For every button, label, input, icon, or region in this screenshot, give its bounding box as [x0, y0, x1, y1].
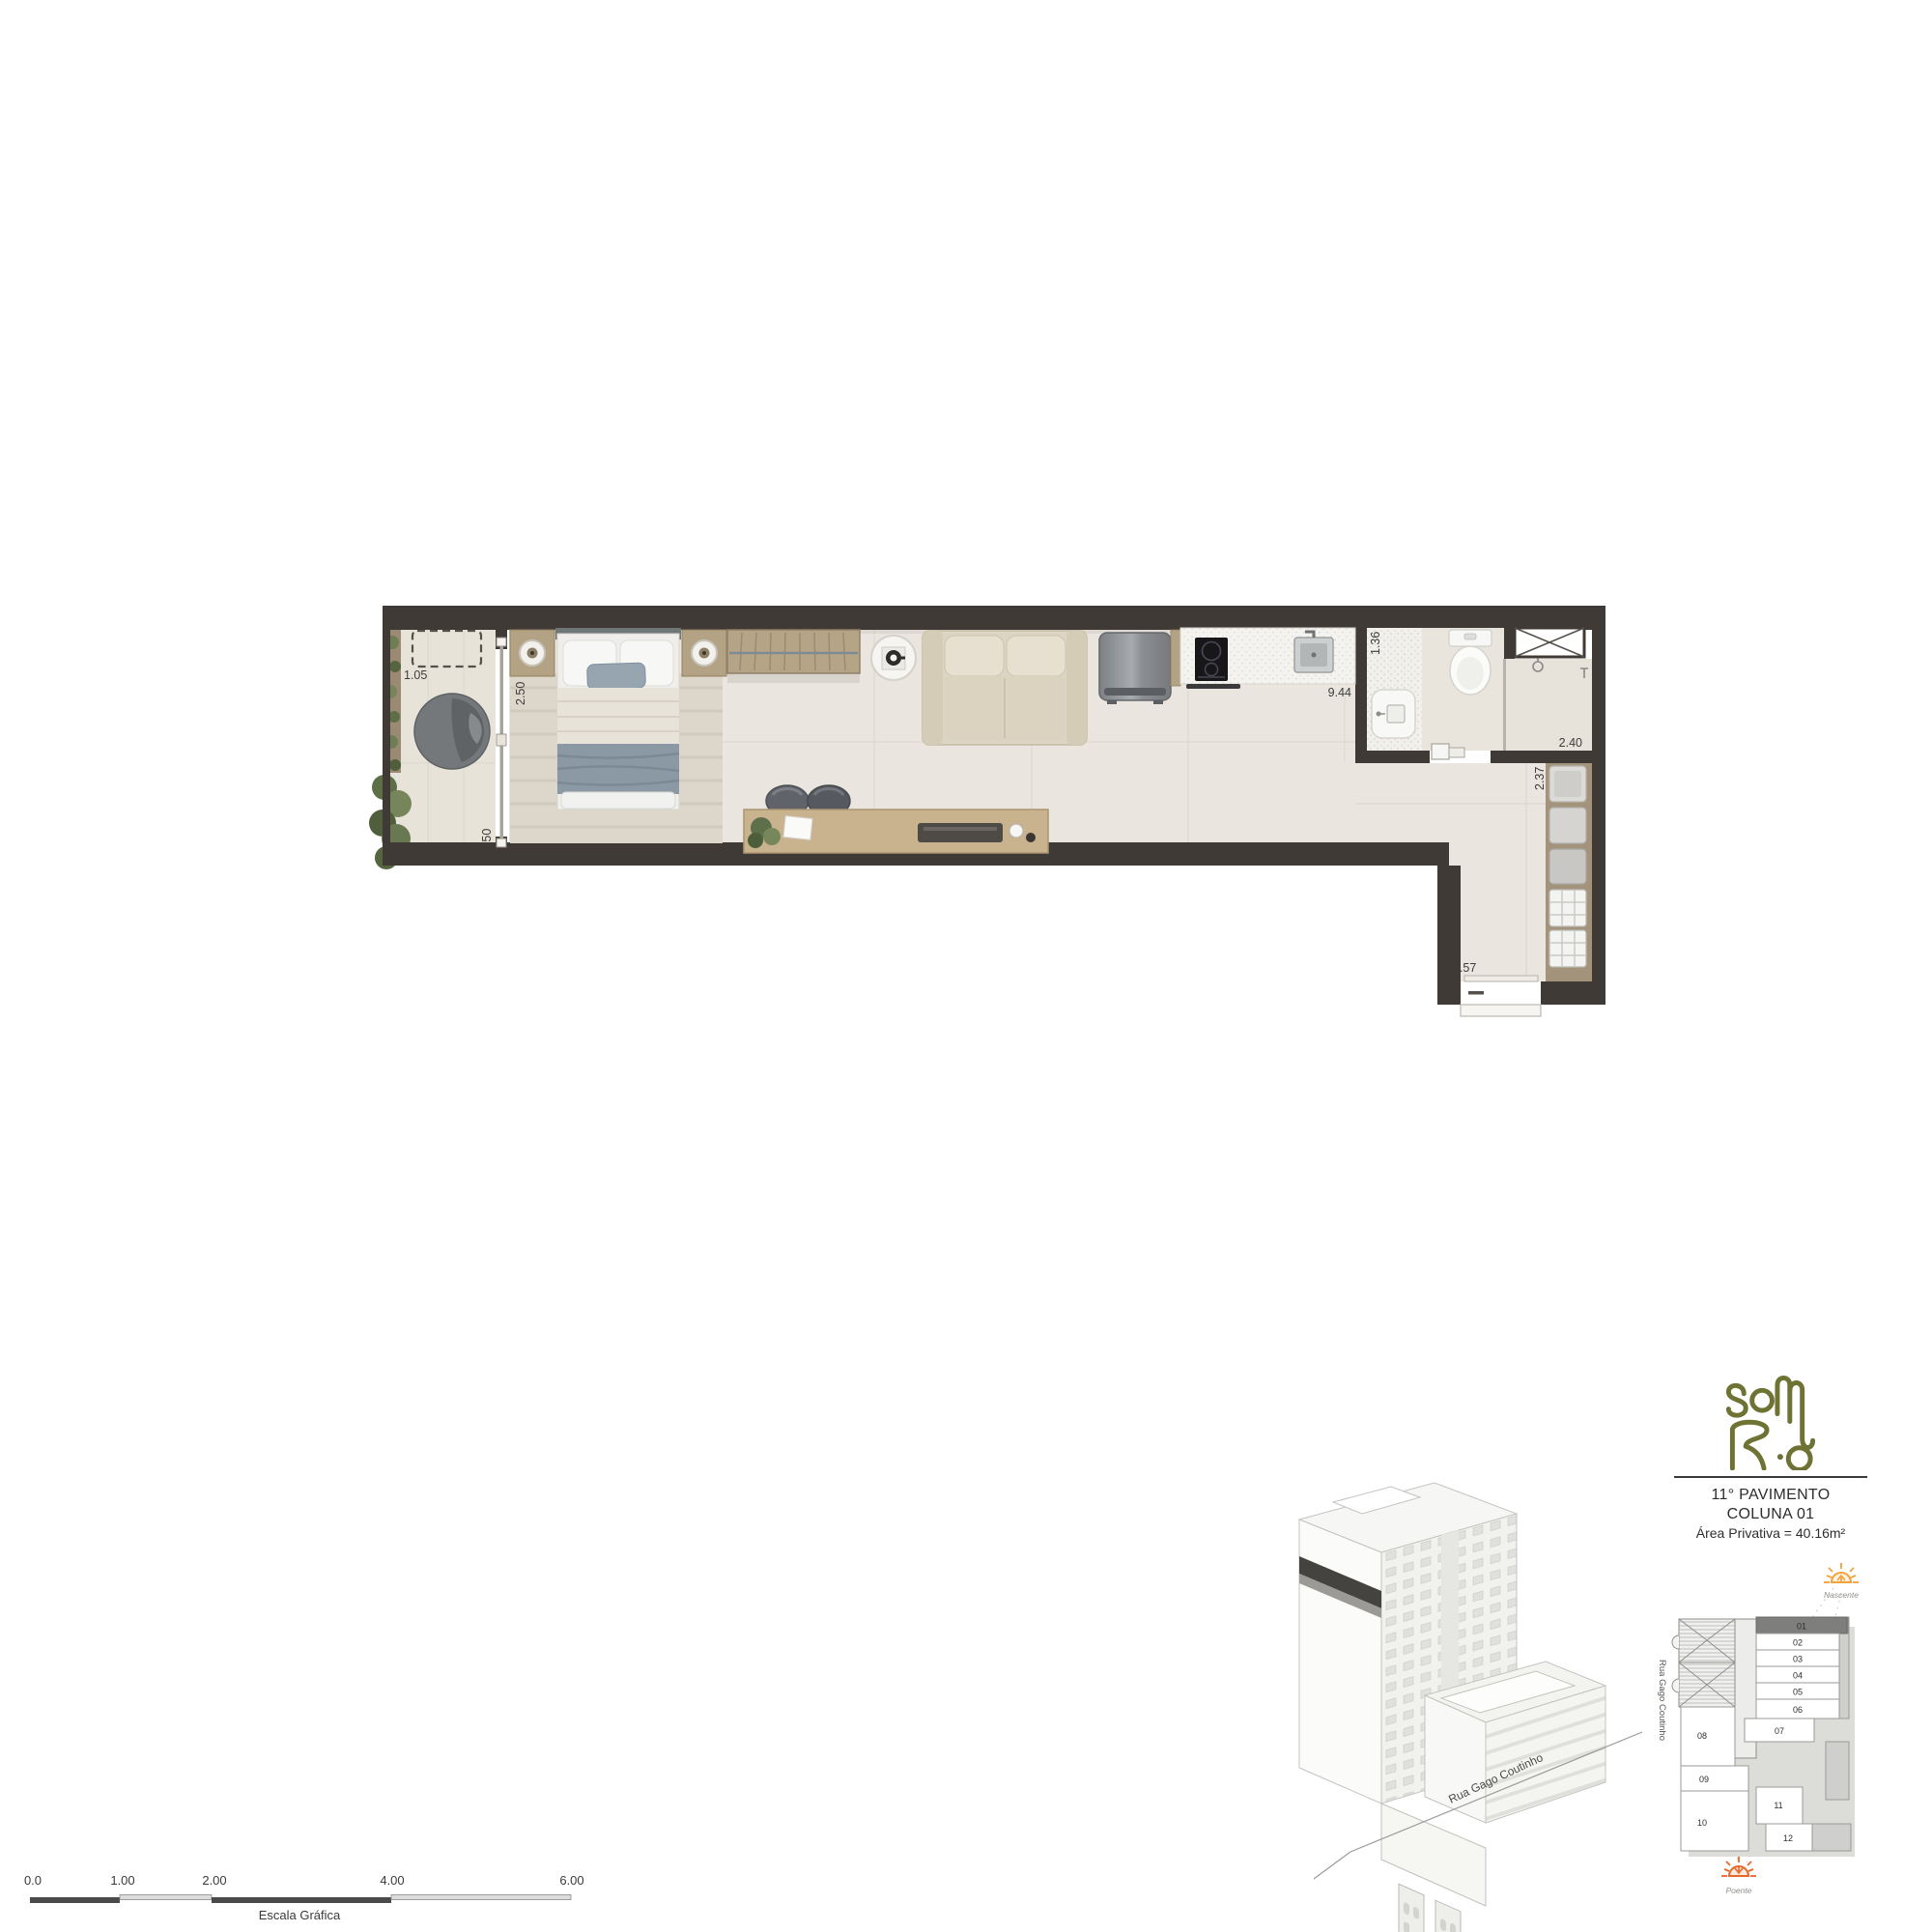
nightstand-right: [682, 630, 726, 676]
graphic-scale: 0.0 1.00 2.00 4.00 6.00 Escala Gráfica: [19, 1869, 599, 1927]
sofa: [923, 631, 1087, 745]
divider: [1674, 1476, 1867, 1478]
scale-tick: 6.00: [559, 1873, 583, 1888]
scale-bar: [30, 1895, 571, 1904]
unit-label: 11: [1774, 1801, 1782, 1810]
shower-partition: [1503, 659, 1506, 751]
sideboard-desk: [744, 810, 1048, 853]
scale-tick: 0.0: [24, 1873, 42, 1888]
toilet: [1449, 630, 1492, 695]
scale-caption: Escala Gráfica: [259, 1908, 341, 1922]
keyplan-street-label: Rua Gago Coutinho: [1657, 1660, 1667, 1741]
unit-label: 05: [1793, 1688, 1803, 1697]
oven-handle: [1186, 684, 1240, 689]
scale-tick: 2.00: [202, 1873, 226, 1888]
dim-living-length: 9.44: [1328, 686, 1351, 699]
nightstand-left: [510, 630, 554, 676]
sun-east-label: Nascente: [1824, 1590, 1859, 1600]
dim-apartment-length: 10.52: [1416, 841, 1446, 855]
unit-label: 01: [1797, 1622, 1806, 1632]
side-table: [871, 636, 916, 680]
dim-balcony-depth: 2.50: [480, 829, 494, 852]
unit-label: 02: [1793, 1638, 1803, 1648]
wardrobe-rack: [727, 630, 860, 683]
unit-label: 10: [1697, 1818, 1707, 1828]
dim-entry-width: 1.57: [1453, 961, 1476, 975]
column-label: COLUNA 01: [1674, 1505, 1867, 1524]
balcony-door: [497, 638, 506, 847]
cooktop: [1195, 638, 1228, 681]
scale-tick: 1.00: [110, 1873, 134, 1888]
bed: [555, 628, 681, 810]
title-block: Sol Rio 11° PAVIMENTO COLUNA 01 Área Pri…: [1674, 1370, 1867, 1543]
sol-rio-logo: Sol Rio: [1720, 1370, 1821, 1470]
entry-door: [1461, 976, 1541, 1016]
scale-tick: 4.00: [380, 1873, 404, 1888]
unit-label: 07: [1775, 1726, 1784, 1736]
dim-kitchen-width: 1.36: [1369, 632, 1382, 655]
floor-label: 11° PAVIMENTO: [1674, 1486, 1867, 1505]
unit-label: 06: [1793, 1705, 1803, 1715]
unit-label: 12: [1783, 1833, 1793, 1843]
sun-west-label: Poente: [1726, 1886, 1752, 1895]
floor-plan: 1.05 2.50 2.50 1.36 9.44 2.40 2.37 10.52…: [367, 580, 1623, 1034]
sun-east-icon: [1824, 1563, 1859, 1582]
dim-bedroom-depth: 2.50: [514, 682, 527, 705]
cup-dark: [1026, 833, 1036, 842]
lounge-chair: [414, 694, 490, 769]
unit-label: 09: [1699, 1775, 1709, 1784]
unit-label: 04: [1793, 1671, 1803, 1681]
presentation-sheet: { "plan": { "dims": { "balcony_width": "…: [0, 0, 1932, 1932]
unit-label: 08: [1697, 1731, 1707, 1741]
area-label: Área Privativa = 40.16m²: [1674, 1524, 1867, 1543]
dim-hall-depth: 2.37: [1533, 767, 1547, 790]
unit-label: 03: [1793, 1655, 1803, 1664]
kitchen-sink: [1294, 632, 1333, 672]
sun-west-icon: [1721, 1857, 1756, 1876]
desk-books: [783, 816, 812, 840]
dim-bathroom-width: 2.40: [1559, 736, 1582, 750]
key-plan: 01 02 03 04 05 06 07 08 09 10 11 12 Nasc…: [1642, 1544, 1932, 1932]
building-axonometric: Rua Gago Coutinho: [1227, 1463, 1662, 1932]
shaft: [1515, 628, 1584, 657]
bathroom-sink: [1372, 690, 1415, 738]
storage-crates: [1549, 766, 1586, 967]
dim-balcony-width: 1.05: [404, 668, 427, 682]
cup: [1009, 824, 1023, 838]
bedroom: [510, 628, 726, 843]
desk-tray: [918, 823, 1003, 842]
